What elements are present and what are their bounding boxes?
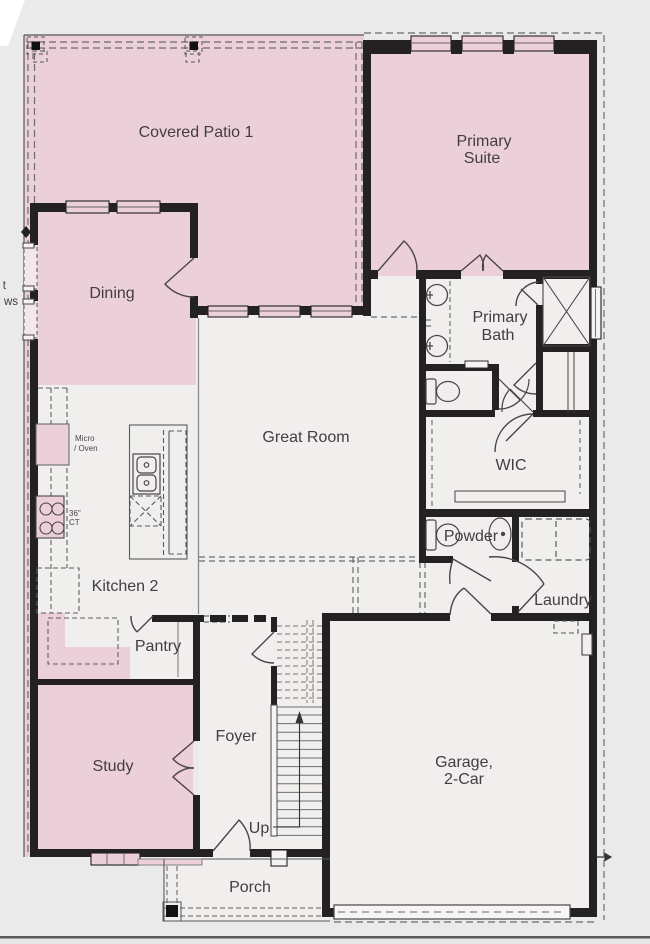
svg-text:Up: Up — [249, 820, 270, 837]
svg-text:ws: ws — [3, 296, 18, 308]
svg-text:Suite: Suite — [464, 150, 501, 167]
svg-text:Pantry: Pantry — [135, 638, 181, 655]
svg-text:Study: Study — [93, 758, 134, 775]
svg-text:36": 36" — [69, 509, 81, 518]
svg-text:Porch: Porch — [229, 879, 271, 896]
svg-text:Primary: Primary — [472, 309, 527, 326]
svg-text:Garage,: Garage, — [435, 754, 493, 771]
svg-text:Foyer: Foyer — [216, 728, 258, 745]
svg-text:Great Room: Great Room — [262, 429, 349, 446]
svg-text:/ Oven: / Oven — [74, 444, 98, 453]
svg-text:CT: CT — [69, 518, 80, 527]
svg-text:WIC: WIC — [495, 457, 526, 474]
svg-text:Kitchen 2: Kitchen 2 — [92, 578, 159, 595]
svg-text:Bath: Bath — [482, 327, 515, 344]
svg-text:Micro: Micro — [75, 434, 95, 443]
svg-text:Dining: Dining — [89, 285, 134, 302]
svg-text:Laundry: Laundry — [534, 592, 592, 609]
svg-text:Primary: Primary — [456, 133, 511, 150]
svg-text:2-Car: 2-Car — [444, 771, 485, 788]
svg-text:Powder: Powder — [444, 528, 499, 545]
svg-text:Covered Patio 1: Covered Patio 1 — [139, 124, 254, 141]
